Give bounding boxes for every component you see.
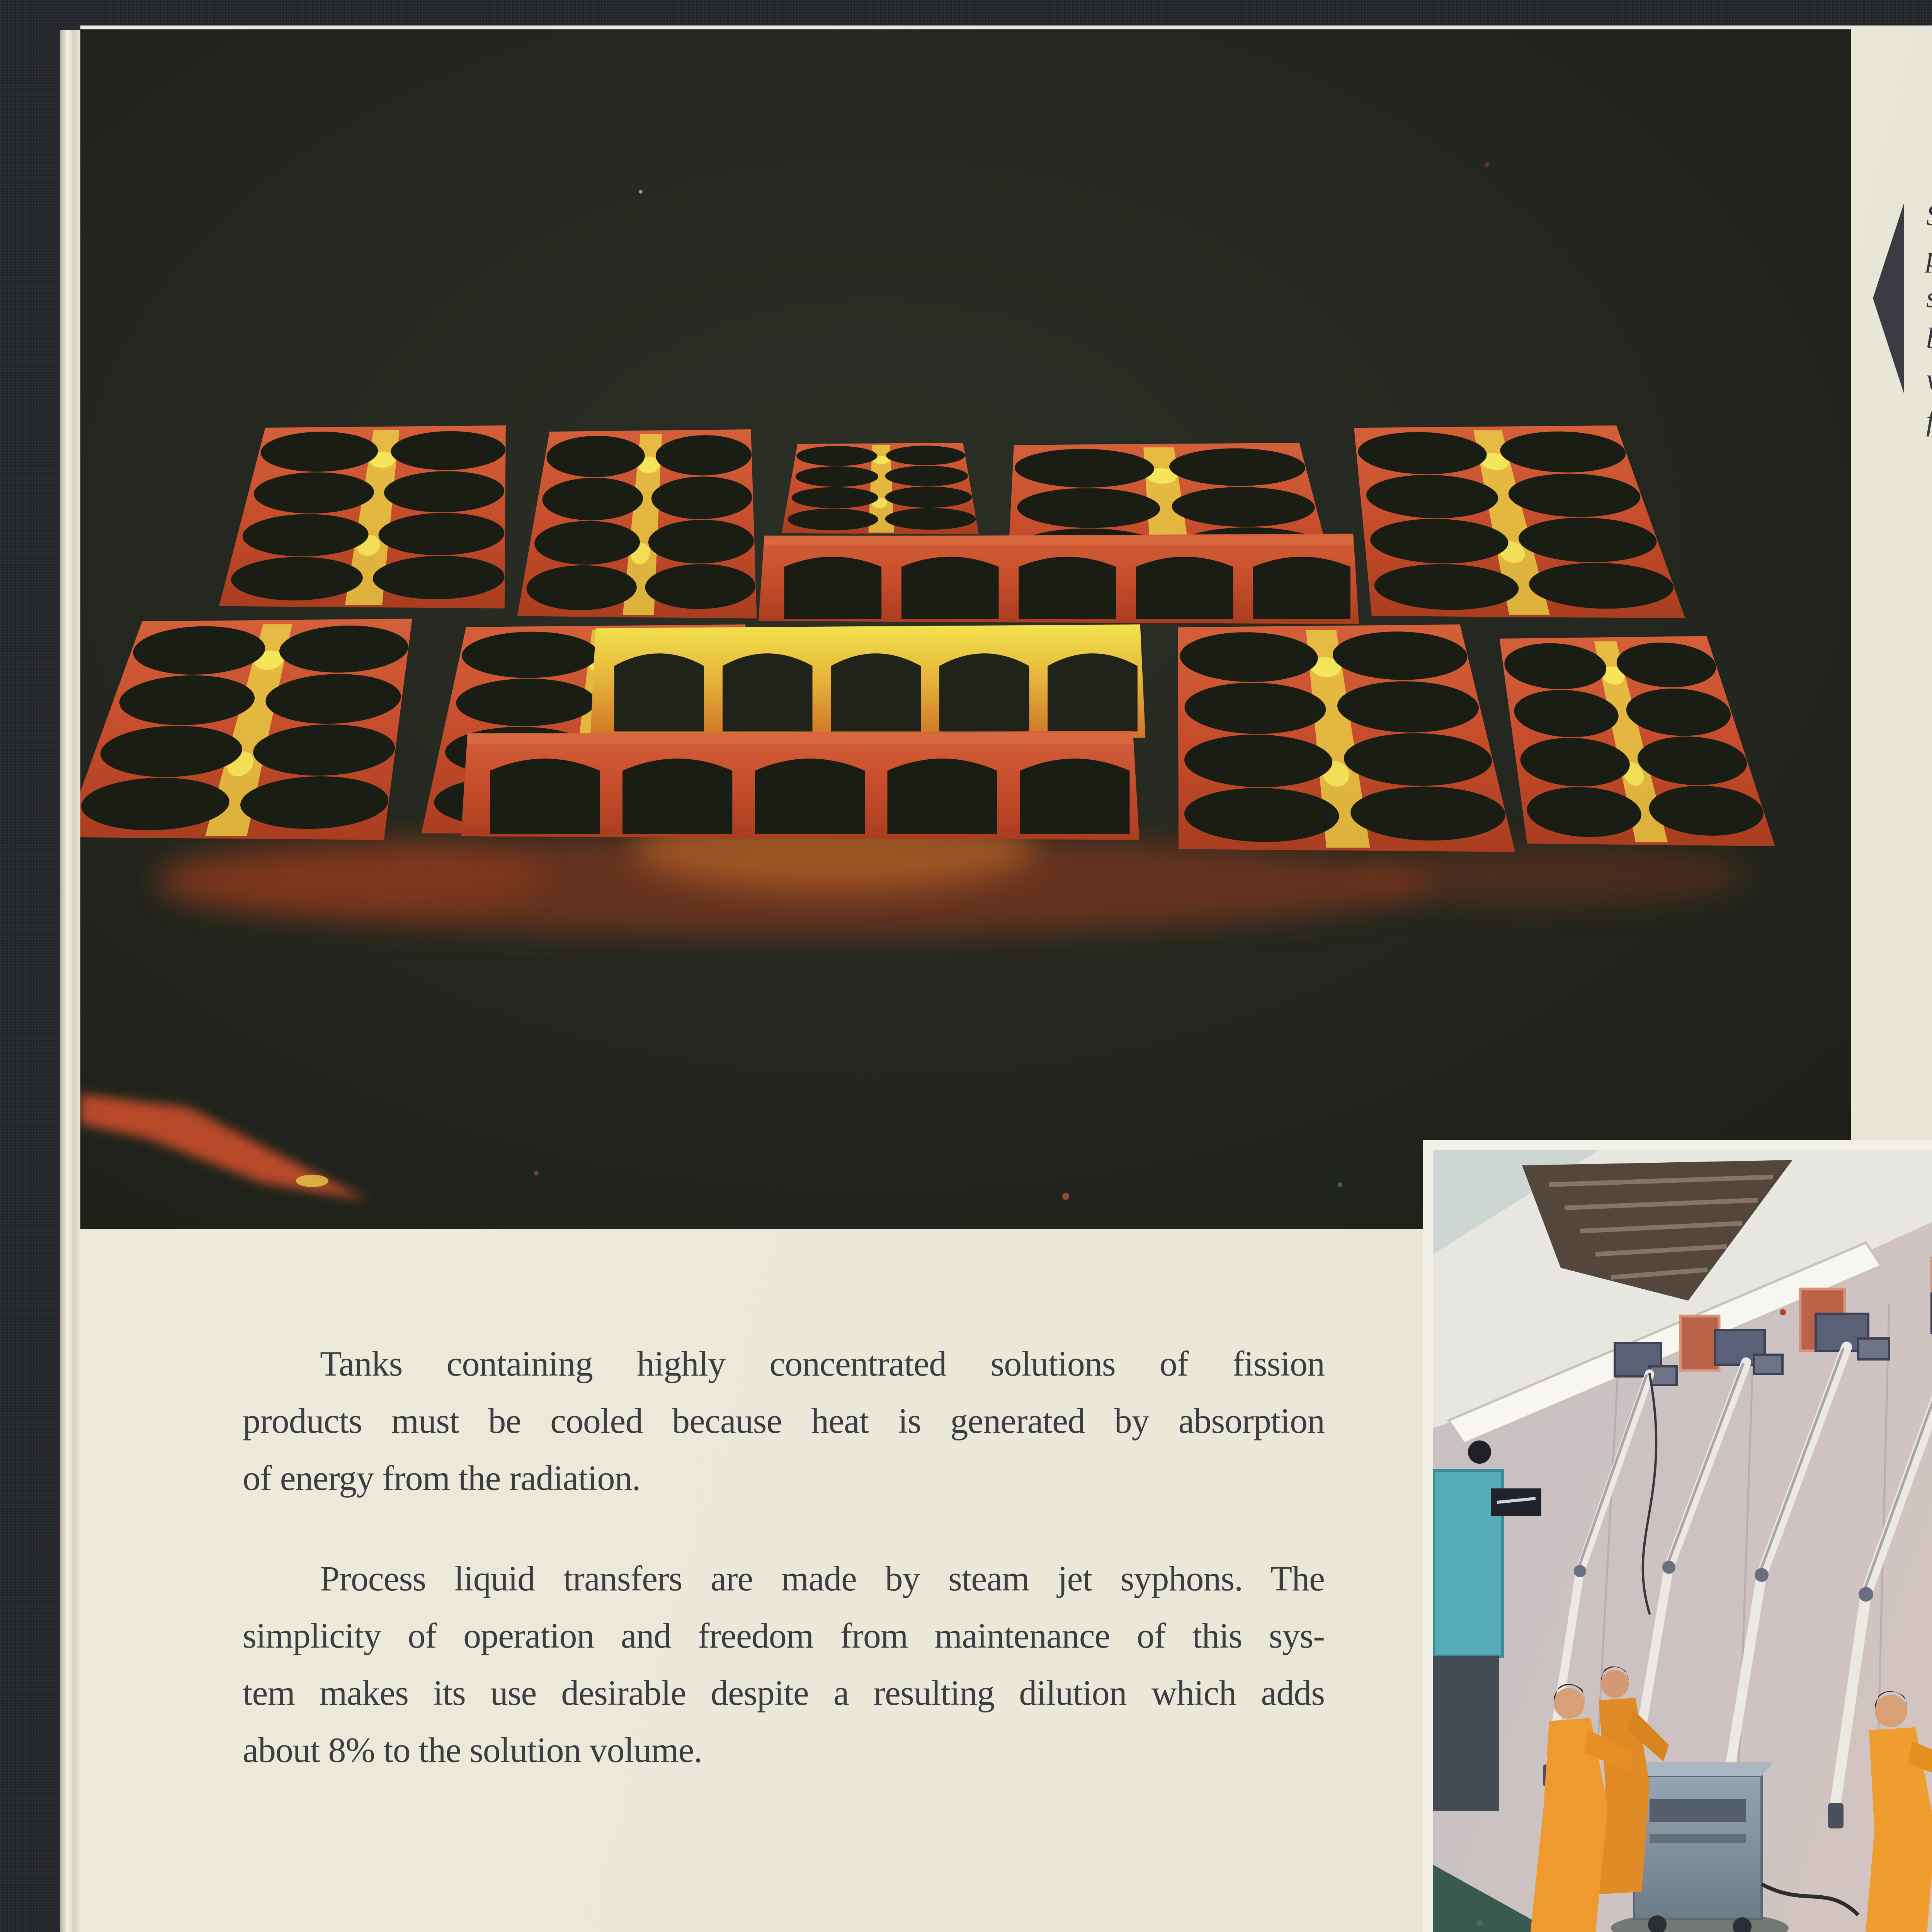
hot-cell-photo-art: CELL 12 (1423, 1140, 1932, 1932)
caption-strontium: Strontium-90 pellets pre- pared for enca… (1926, 195, 1932, 441)
paragraph: Process liquid transfers are made by ste… (243, 1550, 1325, 1779)
paragraph: Tanks containing highly concentrated sol… (243, 1335, 1325, 1507)
body-line: simplicity of operation and freedom from… (243, 1607, 1325, 1664)
caption-line: verted to electrical energy (1926, 359, 1932, 400)
pellets-photo-art (80, 29, 1851, 1229)
caption-line: by these sources can be con- (1926, 318, 1932, 359)
body-line: tem makes its use desirable despite a re… (243, 1664, 1325, 1721)
caption-line: for use in remote locations. (1926, 400, 1932, 441)
strontium-pellets-photo (80, 29, 1851, 1229)
page-stack-edge (60, 30, 81, 1932)
caption-line: Strontium-90 pellets pre- (1926, 195, 1932, 236)
caption-line: pared for encapsulation in (1926, 236, 1932, 277)
body-line: about 8% to the solution volume. (243, 1721, 1325, 1779)
body-line: Tanks containing highly concentrated sol… (243, 1335, 1325, 1392)
manipulator-cells-photo: CELL 12 (1423, 1140, 1932, 1932)
body-text: Tanks containing highly concentrated sol… (243, 1335, 1325, 1779)
pellet-trays (80, 425, 1775, 852)
body-line: of energy from the radiation. (243, 1449, 1325, 1507)
body-line: Process liquid transfers are made by ste… (243, 1550, 1325, 1607)
caption-line: stainless steel. Heat produced (1926, 277, 1932, 318)
book-spread: Strontium-90 pellets pre- pared for enca… (0, 0, 1932, 1932)
body-line: products must be cooled because heat is … (243, 1392, 1325, 1449)
